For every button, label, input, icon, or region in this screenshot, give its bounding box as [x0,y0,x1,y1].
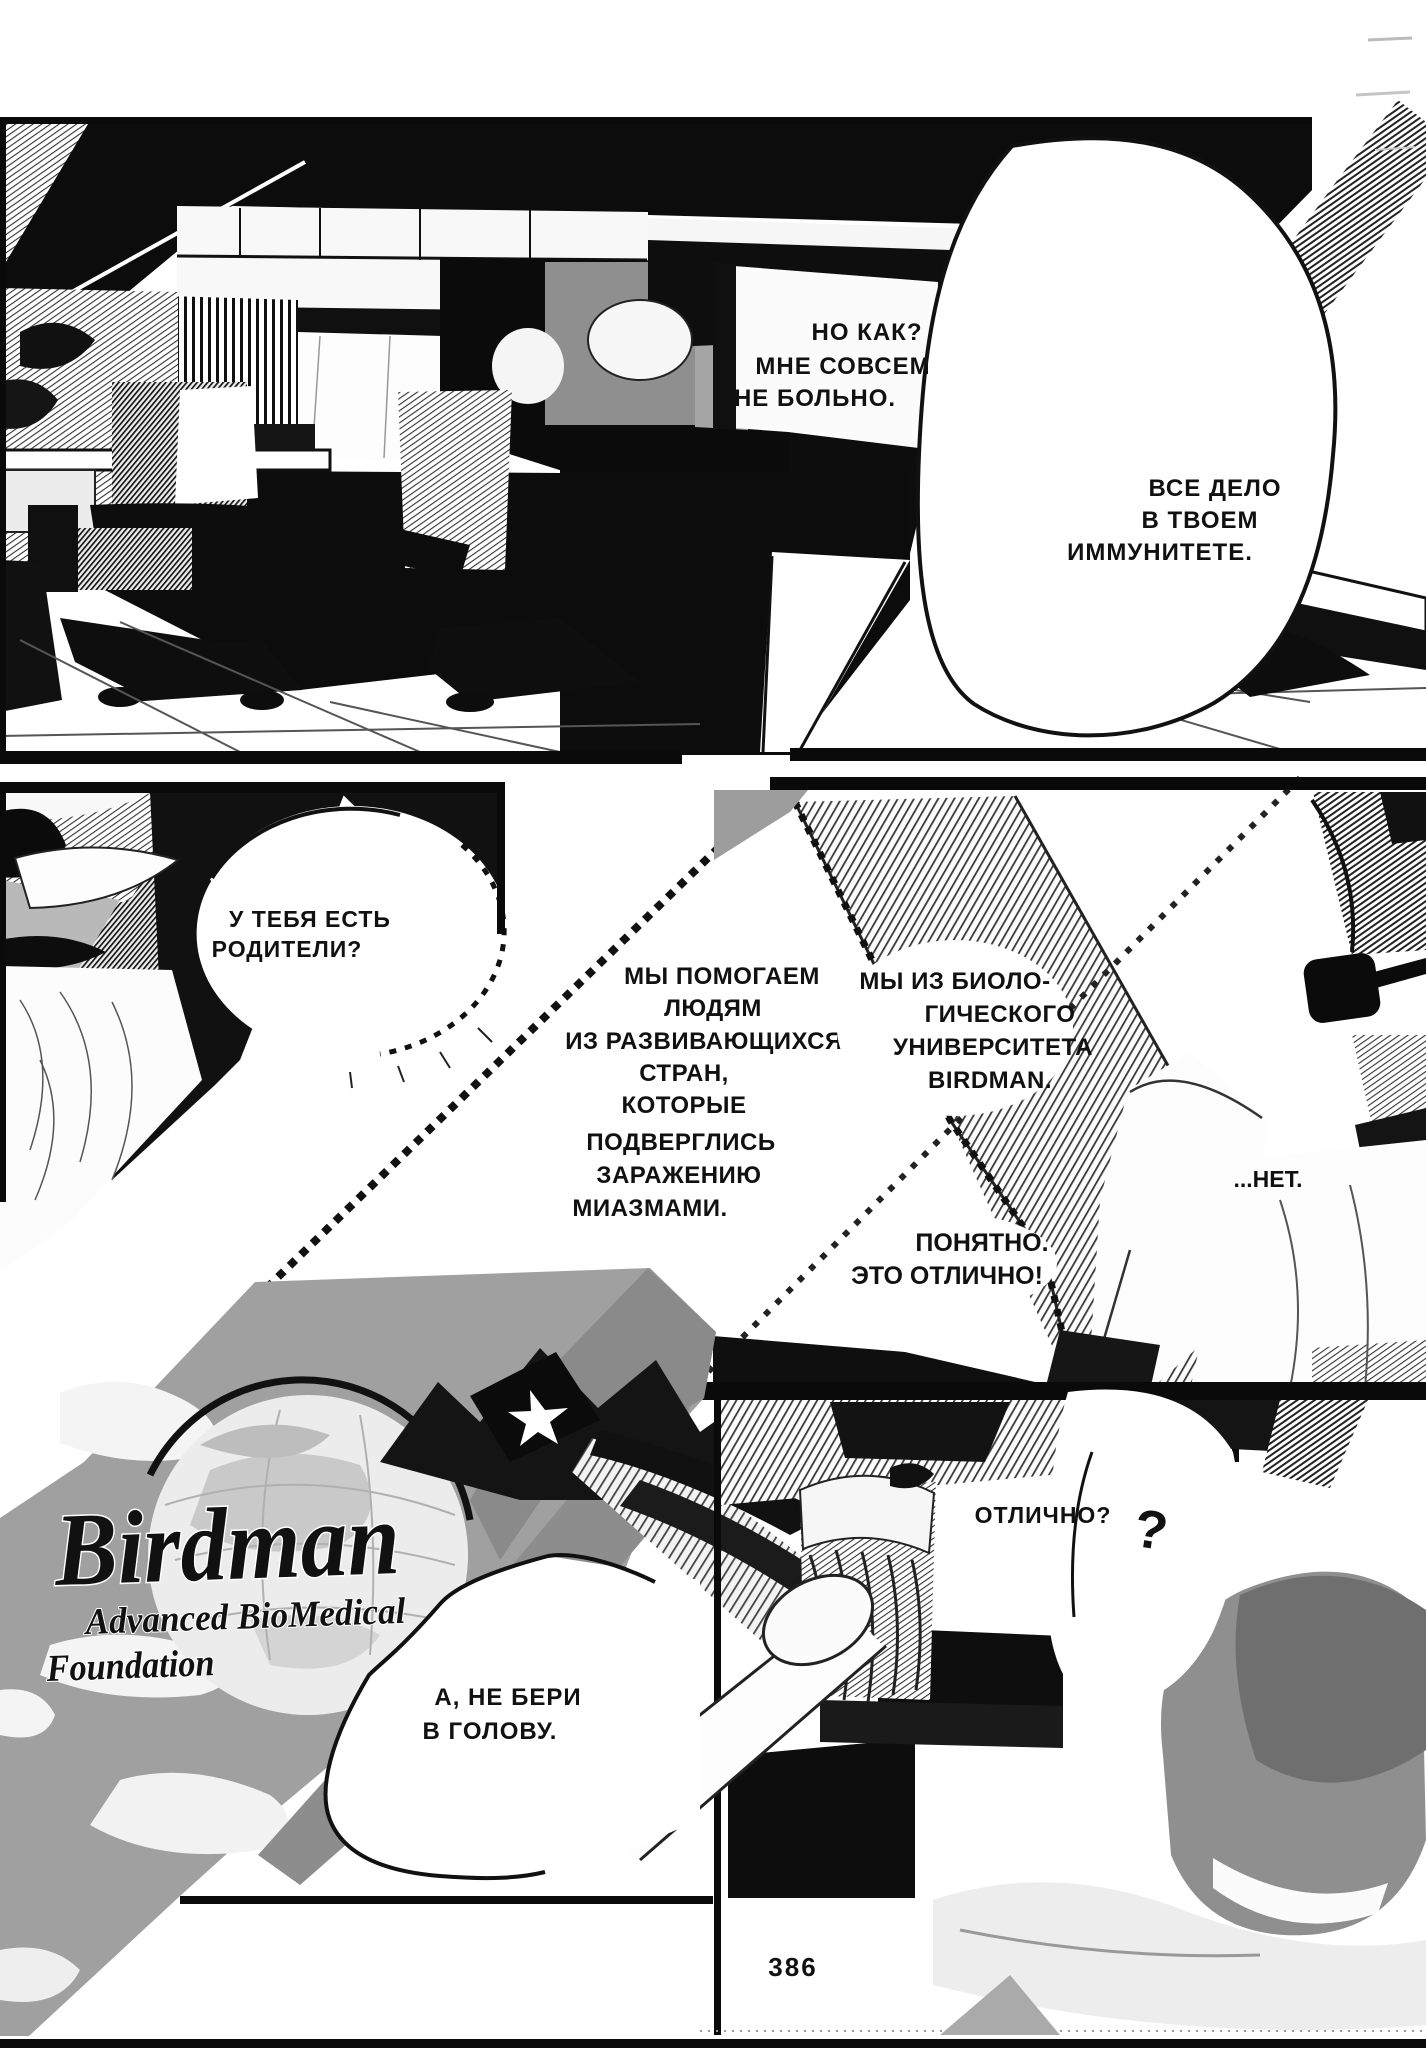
svg-text:МЫ ПОМОГАЕМ: МЫ ПОМОГАЕМ [624,963,820,990]
svg-text:МЫ ИЗ БИОЛО-: МЫ ИЗ БИОЛО- [859,968,1050,995]
svg-text:В ТВОЕМ: В ТВОЕМ [1141,507,1258,534]
svg-text:У ТЕБЯ ЕСТЬ: У ТЕБЯ ЕСТЬ [229,906,391,932]
svg-text:386: 386 [768,1952,817,1982]
svg-text:ЭТО ОТЛИЧНО!: ЭТО ОТЛИЧНО! [851,1262,1043,1290]
svg-text:МИАЗМАМИ.: МИАЗМАМИ. [572,1195,727,1222]
svg-text:МНЕ СОВСЕМ: МНЕ СОВСЕМ [755,353,930,380]
svg-text:ИММУНИТЕТЕ.: ИММУНИТЕТЕ. [1067,539,1253,566]
svg-text:НЕ БОЛЬНО.: НЕ БОЛЬНО. [734,385,896,412]
svg-text:ПОНЯТНО.: ПОНЯТНО. [915,1229,1048,1257]
svg-text:РОДИТЕЛИ?: РОДИТЕЛИ? [212,936,363,962]
svg-text:ЛЮДЯМ: ЛЮДЯМ [664,995,762,1022]
svg-text:BIRDMAN.: BIRDMAN. [928,1067,1052,1094]
svg-text:Birdman: Birdman [52,1481,402,1608]
svg-text:СТРАН,: СТРАН, [639,1060,729,1087]
svg-text:ИЗ РАЗВИВАЮЩИХСЯ: ИЗ РАЗВИВАЮЩИХСЯ [565,1028,842,1055]
svg-text:А, НЕ БЕРИ: А, НЕ БЕРИ [434,1684,581,1711]
svg-text:НО КАК?: НО КАК? [812,319,923,346]
svg-text:ЗАРАЖЕНИЮ: ЗАРАЖЕНИЮ [596,1162,761,1189]
svg-text:...НЕТ.: ...НЕТ. [1234,1166,1303,1192]
svg-text:ГИЧЕСКОГО: ГИЧЕСКОГО [925,1001,1076,1028]
svg-text:ПОДВЕРГЛИСЬ: ПОДВЕРГЛИСЬ [586,1129,775,1156]
svg-text:УНИВЕРСИТЕТА: УНИВЕРСИТЕТА [893,1034,1093,1061]
svg-text:ОТЛИЧНО?: ОТЛИЧНО? [975,1502,1112,1528]
svg-text:ВСЕ ДЕЛО: ВСЕ ДЕЛО [1148,475,1281,502]
svg-text:Foundation: Foundation [45,1642,215,1690]
svg-text:КОТОРЫЕ: КОТОРЫЕ [621,1092,746,1119]
svg-text:В ГОЛОВУ.: В ГОЛОВУ. [423,1718,558,1745]
